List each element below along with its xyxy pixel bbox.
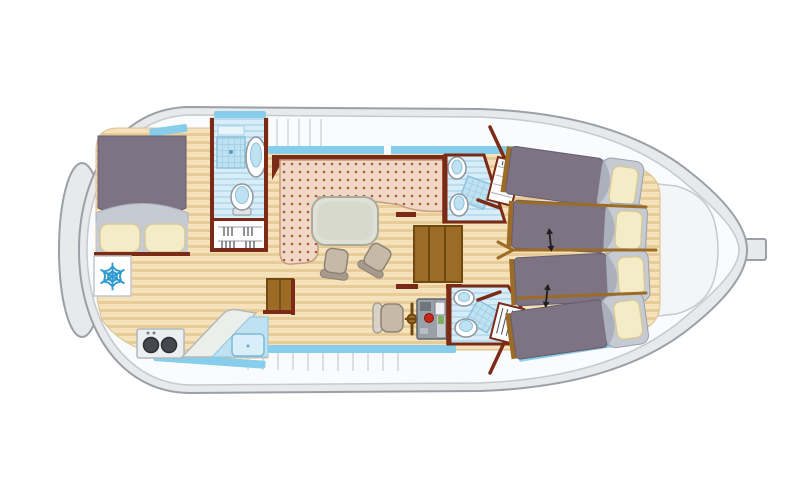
floor-plan-canvas: [0, 0, 810, 500]
pillow: [145, 224, 185, 252]
wall: [264, 118, 268, 252]
shower-drain: [229, 150, 233, 154]
wall: [210, 118, 214, 252]
toilet-bowl: [460, 321, 473, 332]
window-strip-bottom: [268, 345, 456, 353]
window-strip-top: [268, 146, 520, 154]
green-indicator: [438, 316, 444, 324]
panel-display: [420, 302, 431, 311]
companionway-steps: [414, 226, 462, 282]
wall: [212, 218, 266, 221]
wall: [396, 212, 416, 217]
pillow: [100, 224, 140, 252]
cabinet: [263, 279, 295, 315]
wall: [210, 248, 268, 252]
stove-burner: [162, 338, 177, 353]
red-button: [425, 314, 434, 323]
wardrobe: [214, 221, 266, 250]
table-top: [317, 202, 373, 240]
boat-floor-plan: [0, 0, 810, 500]
washbasin-bowl: [251, 143, 262, 167]
helm-seat: [373, 303, 403, 333]
washbasin-bowl: [452, 160, 462, 174]
instrument-panel: [417, 299, 447, 339]
shelf: [218, 126, 244, 135]
washbasin-bowl: [459, 293, 470, 302]
window-gap: [384, 145, 391, 155]
window-strip-bathroom: [214, 111, 266, 118]
refrigerator: [94, 256, 131, 296]
forward-bathroom: [210, 118, 268, 252]
toilet-bowl: [454, 196, 464, 210]
panel-screen: [435, 302, 445, 315]
aft-cabin-top: [500, 143, 648, 257]
stove-burner: [144, 338, 159, 353]
aft-cabin-bottom: [505, 249, 651, 362]
wall: [396, 284, 418, 289]
sink-drain: [247, 345, 250, 348]
toilet-bowl: [236, 187, 249, 204]
